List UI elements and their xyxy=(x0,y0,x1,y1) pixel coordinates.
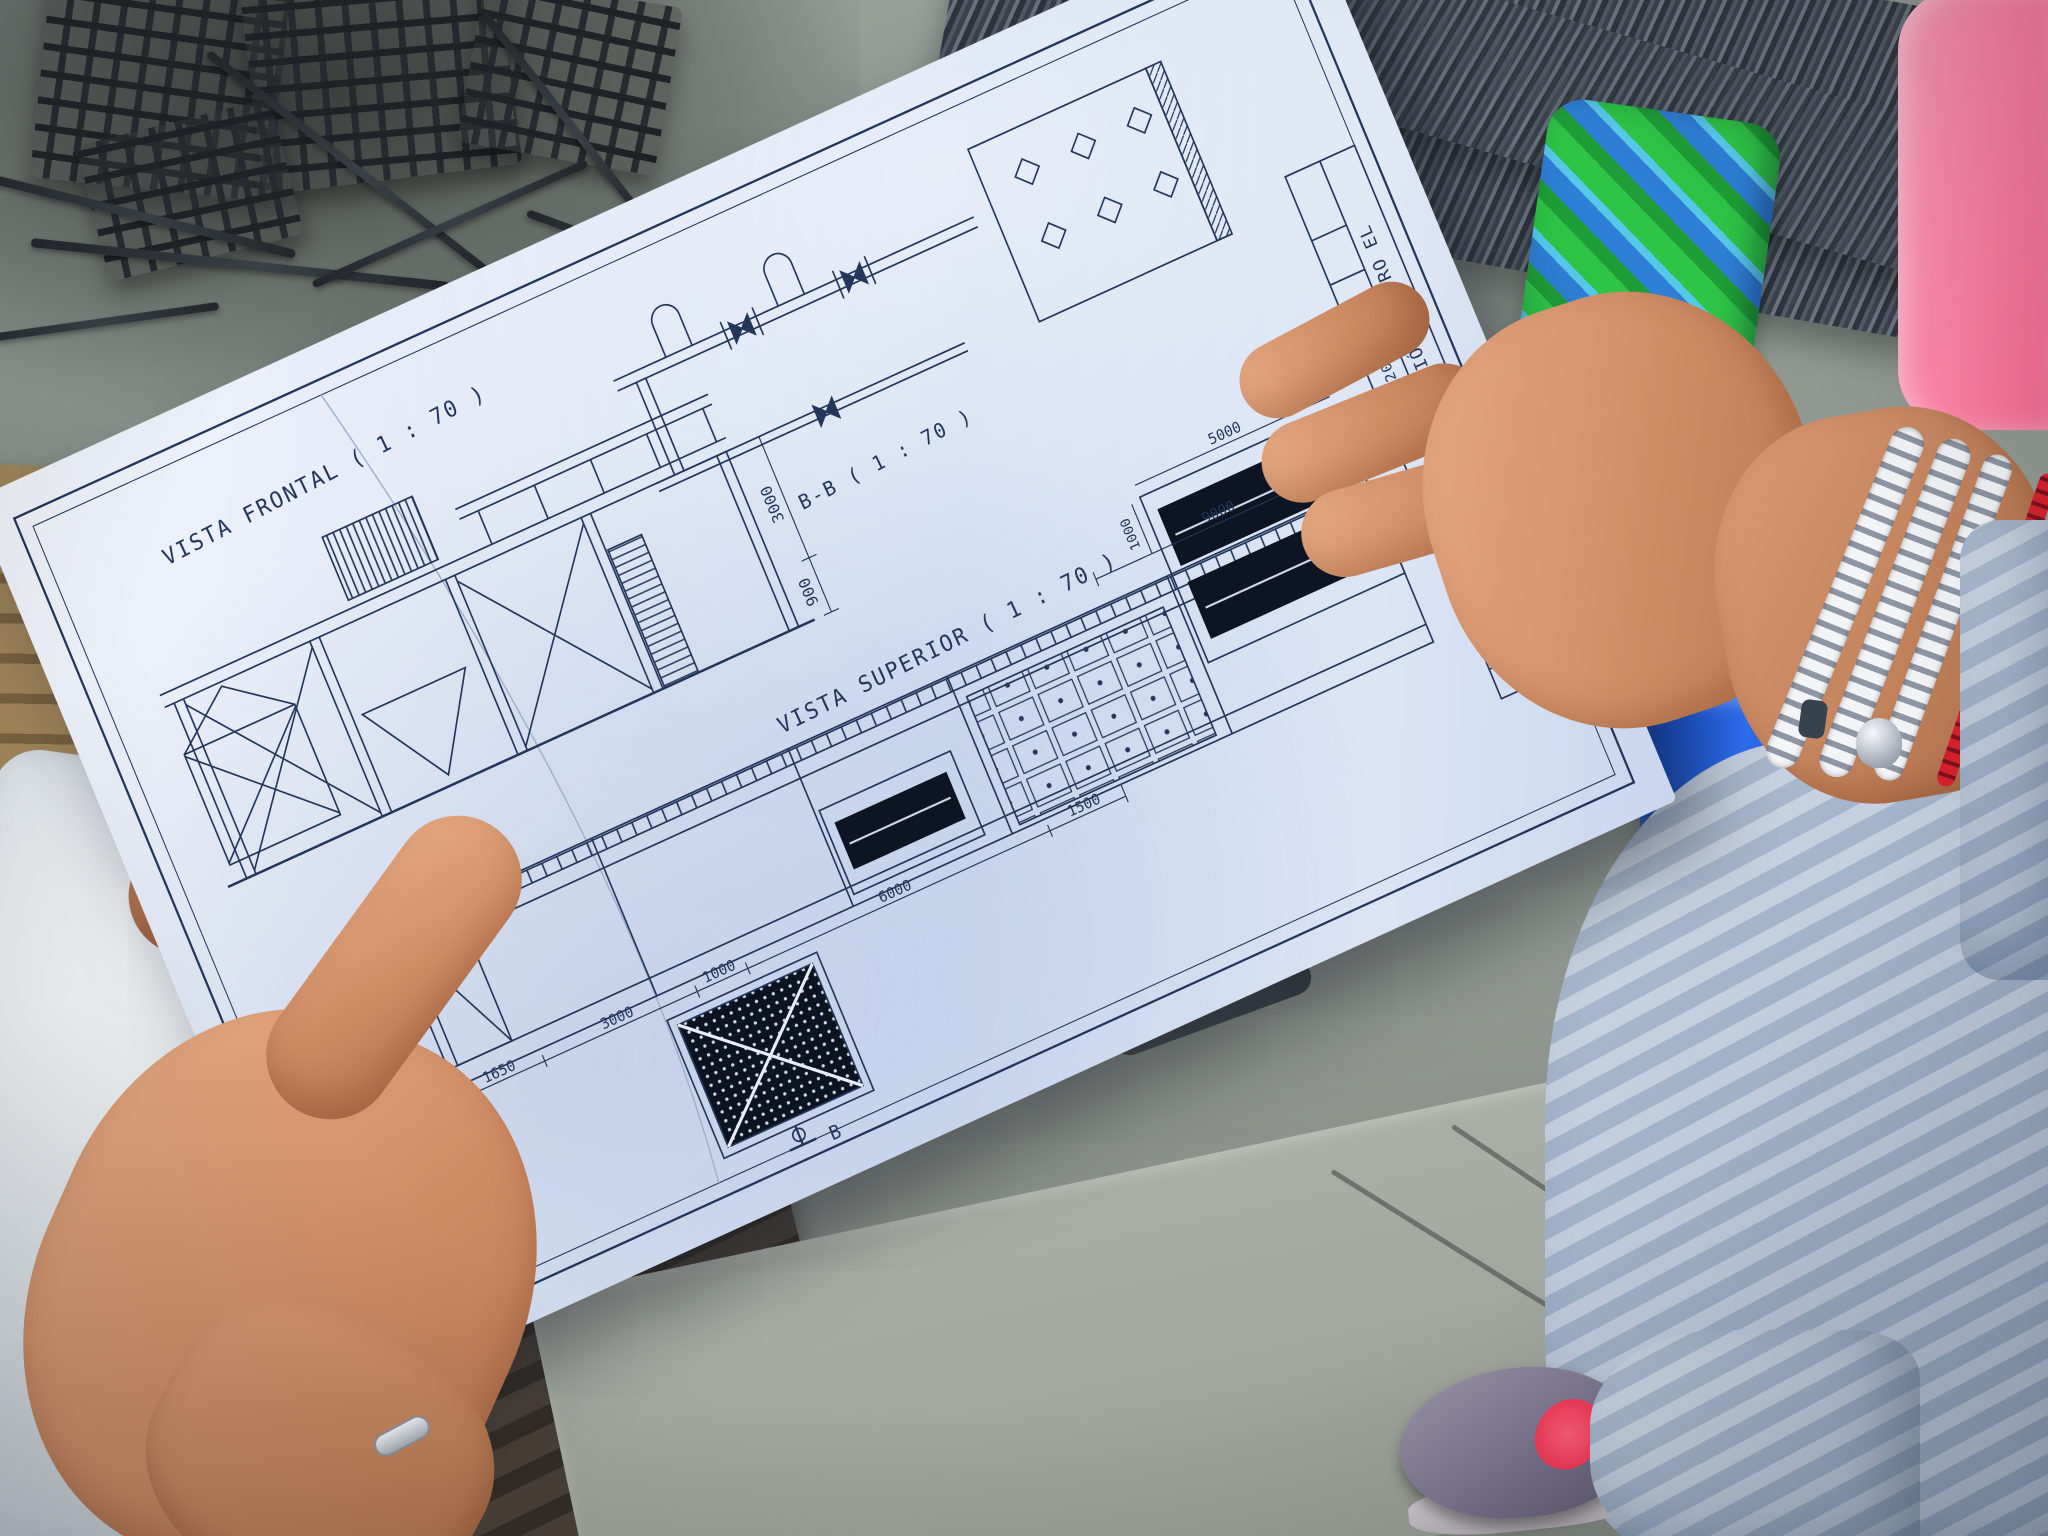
dim-1000: 1000 xyxy=(700,957,738,987)
pink-garment xyxy=(1898,0,2048,430)
bell-charm xyxy=(1856,718,1902,768)
dim-3000b: 3000 xyxy=(598,1003,636,1033)
filter-square: B xyxy=(667,952,887,1189)
jeans-hem xyxy=(1590,1330,1920,1536)
denim-sleeve xyxy=(1960,520,2048,980)
figure-charm xyxy=(1797,698,1828,739)
construction-site-photo: PROPUESTA UBICACIÓN FILTRO EL LIMONAL 20… xyxy=(0,0,2048,1536)
front-dimension-chain: 3000 900 xyxy=(738,433,839,621)
dim-1650: 1650 xyxy=(480,1057,518,1087)
dim-1000b: 1000 xyxy=(1117,515,1144,552)
dim-3000: 3000 xyxy=(756,483,788,526)
section-marker-b: B xyxy=(826,1121,844,1145)
